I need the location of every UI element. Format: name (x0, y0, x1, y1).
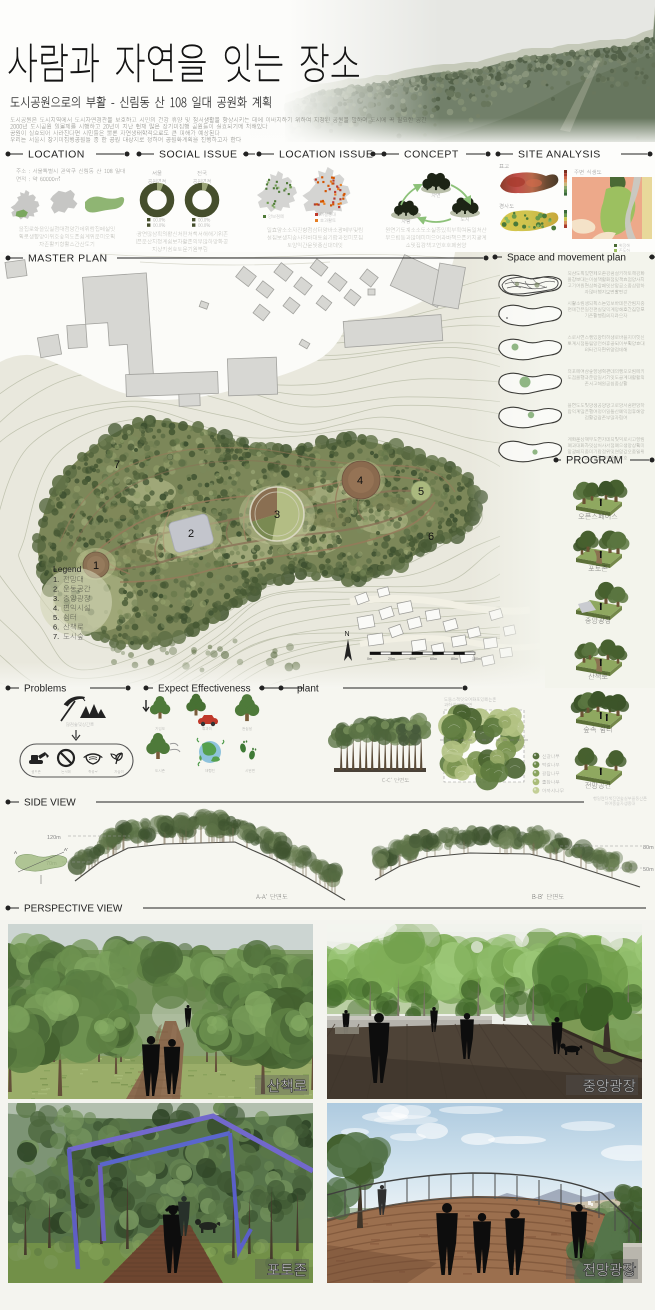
svg-text:Problems: Problems (24, 684, 66, 695)
svg-text:Expect Effectiveness: Expect Effectiveness (158, 684, 251, 695)
svg-text:SIDE VIEW: SIDE VIEW (24, 798, 76, 809)
svg-text:50m: 50m (643, 867, 654, 873)
svg-text:A: A (14, 850, 17, 855)
svg-text:SOCIAL ISSUE: SOCIAL ISSUE (159, 149, 238, 161)
svg-text:plant: plant (297, 684, 319, 695)
svg-text:Space and movement plan: Space and movement plan (507, 253, 626, 264)
svg-text:CONCEPT: CONCEPT (404, 149, 459, 161)
svg-text:80m: 80m (643, 845, 654, 851)
svg-text:120m: 120m (47, 835, 61, 841)
svg-text:LOCATION: LOCATION (28, 149, 85, 161)
svg-text:SITE ANALYSIS: SITE ANALYSIS (518, 149, 601, 161)
svg-text:PROGRAM: PROGRAM (566, 455, 623, 467)
svg-text:LOCATION ISSUE: LOCATION ISSUE (279, 149, 373, 161)
svg-text:A': A' (64, 847, 68, 852)
svg-text:PERSPECTIVE VIEW: PERSPECTIVE VIEW (24, 904, 123, 915)
